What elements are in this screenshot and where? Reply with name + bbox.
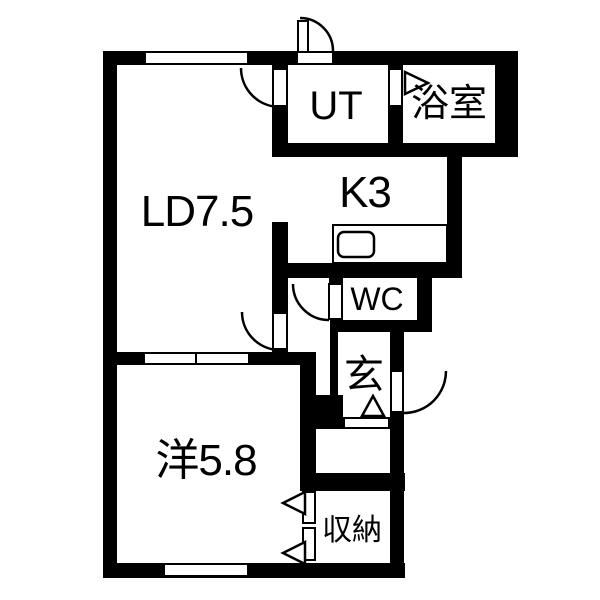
room-label-storage: 収納	[322, 516, 382, 546]
room-label-western-room: 洋5.8	[155, 439, 256, 483]
room-label-bathroom: 浴室	[411, 85, 487, 123]
room-label-utility: UT	[309, 86, 362, 126]
door-arc-ut	[241, 68, 280, 107]
room-label-toilet: WC	[350, 283, 403, 315]
door-arc-ld-hall	[242, 312, 280, 350]
door-arc-entrance	[404, 371, 446, 413]
floor-plan: LD7.5 K3 UT 浴室 WC 玄 洋5.8 収納	[0, 0, 600, 600]
room-label-entrance: 玄	[344, 355, 384, 395]
symbols-layer	[0, 0, 600, 600]
closet-door-icon-upper	[283, 492, 305, 514]
closet-door-icon-lower	[283, 542, 305, 564]
room-label-kitchen: K3	[339, 171, 391, 215]
kitchen-sink	[338, 232, 374, 257]
door-arc-wc	[293, 284, 329, 320]
room-label-living-dining: LD7.5	[141, 190, 253, 234]
door-arc-top	[300, 18, 333, 51]
entrance-marker-icon	[362, 396, 384, 416]
